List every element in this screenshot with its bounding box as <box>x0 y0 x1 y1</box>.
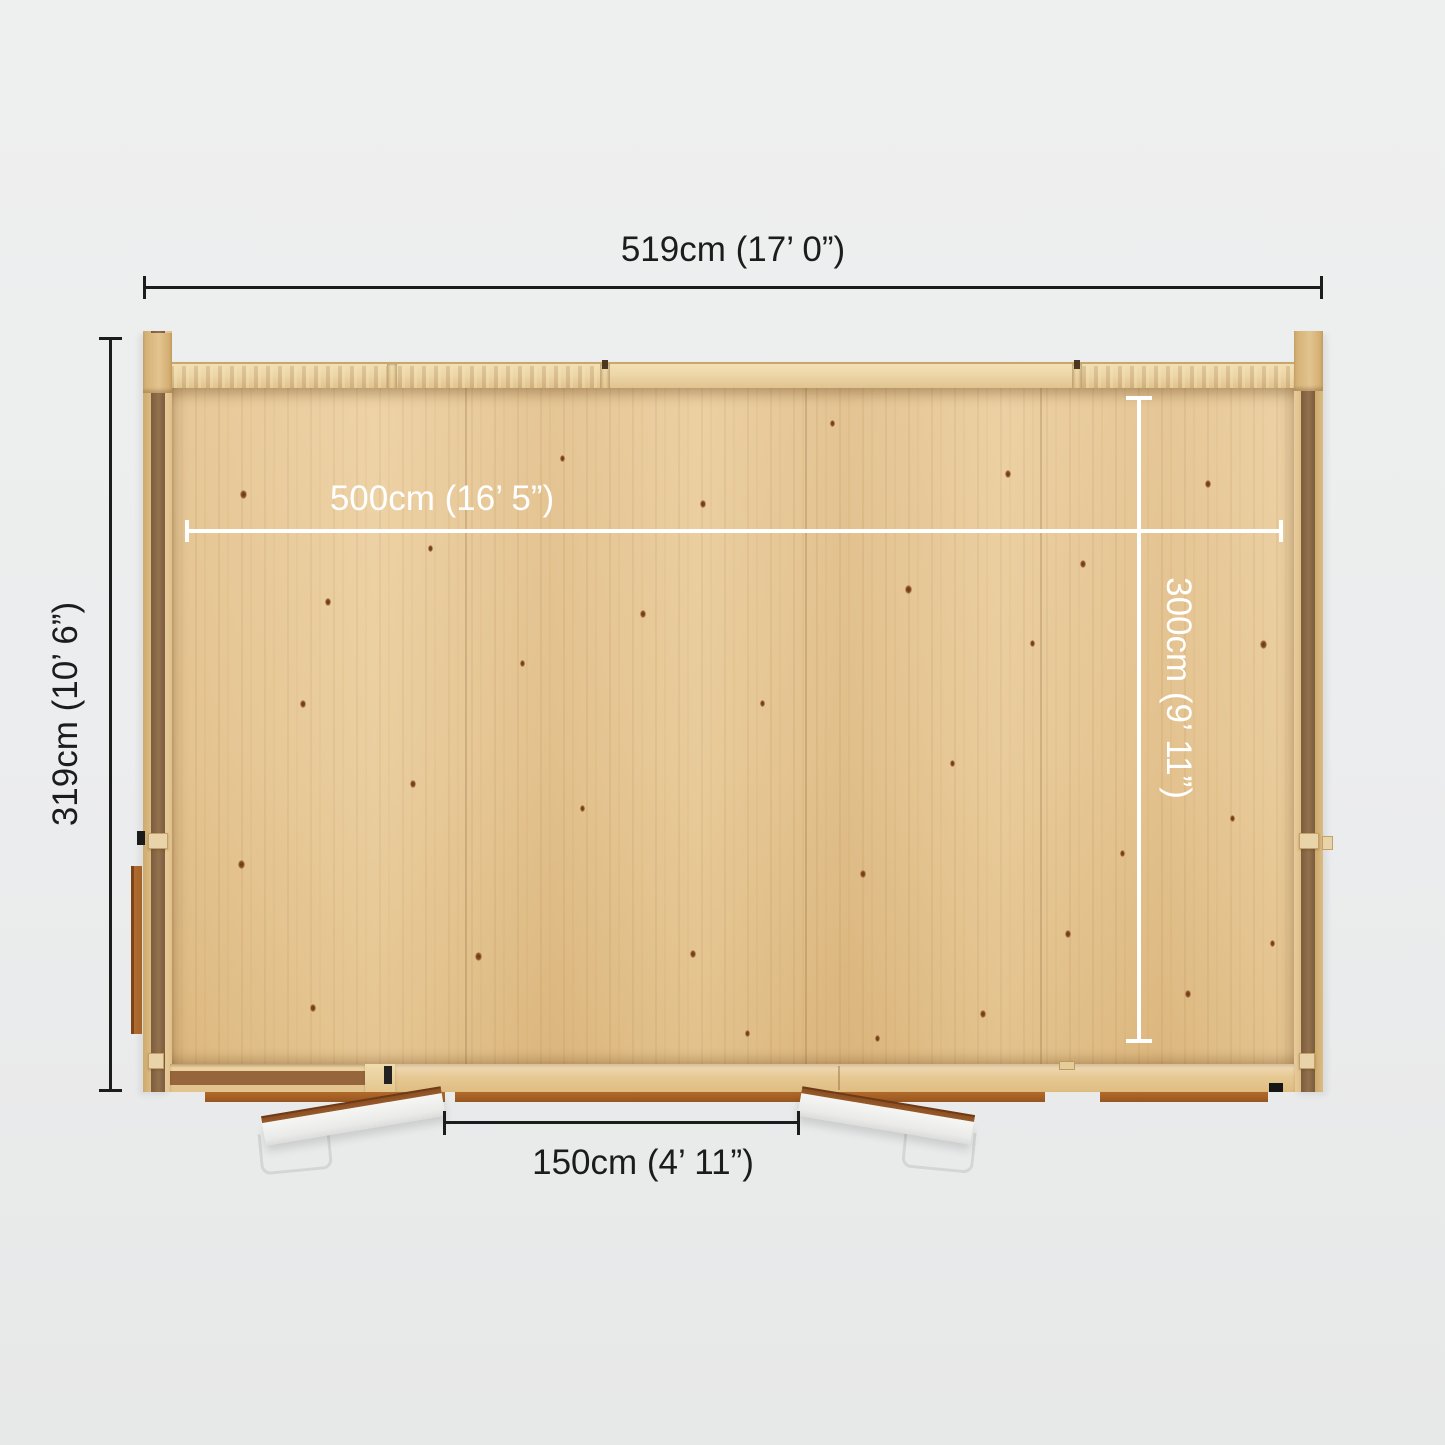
dimension-tick <box>1279 520 1283 542</box>
dimension-tick <box>1320 276 1323 299</box>
door-width-label: 150cm (4’ 11”) <box>532 1143 754 1183</box>
wood-knot <box>905 585 912 594</box>
wood-knot <box>428 545 433 552</box>
overall-depth-label: 319cm (10’ 6”) <box>46 602 86 826</box>
wood-knot <box>1120 850 1125 857</box>
wood-knot <box>980 1010 986 1018</box>
left-side-door-edge <box>131 866 142 1034</box>
right-wall-tie <box>1299 1053 1315 1069</box>
dimension-line <box>185 529 1283 533</box>
right-wall-tie <box>1299 833 1319 849</box>
internal-width-label: 500cm (16’ 5”) <box>330 479 554 519</box>
dimension-tick <box>443 1111 446 1135</box>
wood-knot <box>830 420 835 427</box>
wood-knot <box>520 660 525 667</box>
overall-width-label: 519cm (17’ 0”) <box>621 230 845 270</box>
front-sill <box>1100 1092 1268 1102</box>
wood-knot <box>860 870 866 878</box>
dimension-tick <box>185 520 189 542</box>
wood-knot <box>238 860 245 869</box>
left-wall-hinge-mark <box>137 831 145 845</box>
door-hinge-slot <box>384 1066 392 1084</box>
front-sill <box>455 1092 1045 1102</box>
wood-knot <box>310 1004 316 1012</box>
wood-knot <box>745 1030 750 1037</box>
wood-knot <box>475 952 482 961</box>
wood-knot <box>580 805 585 812</box>
wood-knot <box>1080 560 1086 568</box>
back-wall-log-endgrain <box>1082 366 1295 390</box>
left-wall-tie <box>148 1053 164 1069</box>
wood-knot <box>1185 990 1191 998</box>
right-wall-cavity <box>1301 331 1315 1092</box>
wood-knot <box>1270 940 1275 947</box>
door-latch-mark <box>1269 1083 1283 1092</box>
wood-knot <box>240 490 247 499</box>
dimension-line <box>443 1121 800 1124</box>
wood-knot <box>1005 470 1011 478</box>
left-wall-outer-board <box>143 331 151 1092</box>
front-wall-notch <box>1059 1061 1075 1070</box>
wood-knot <box>325 598 331 606</box>
front-wall-jamb <box>365 1064 395 1092</box>
dimension-tick <box>99 337 122 340</box>
wood-knot <box>1030 640 1035 647</box>
right-wall-inner-board <box>1294 331 1301 1092</box>
floor-seam <box>805 388 807 1064</box>
wood-knot <box>1065 930 1071 938</box>
left-wall <box>143 331 172 1092</box>
back-wall-notch <box>1074 360 1080 369</box>
front-wall-threshold <box>395 1064 1295 1092</box>
dimension-line <box>109 337 112 1092</box>
dimension-line <box>143 286 1323 289</box>
wood-knot <box>875 1035 880 1042</box>
front-wall-left-section <box>170 1064 365 1092</box>
wood-knot <box>950 760 955 767</box>
wood-knot <box>1205 480 1211 488</box>
wood-knot <box>690 950 696 958</box>
dimension-line <box>1137 396 1141 1043</box>
floor-seam <box>1040 388 1042 1064</box>
wood-knot <box>1260 640 1267 649</box>
internal-depth-label: 300cm (9’ 11”) <box>1158 577 1198 799</box>
front-wall-joint <box>838 1066 840 1090</box>
dimension-tick <box>797 1111 800 1135</box>
left-wall-tie <box>148 833 168 849</box>
left-wall-inner-board <box>165 331 172 1092</box>
wood-knot <box>300 700 306 708</box>
right-wall <box>1294 331 1323 1092</box>
diagram-canvas: 519cm (17’ 0”) 319cm (10’ 6”) 500cm (16’… <box>0 0 1445 1445</box>
dimension-tick <box>1126 396 1152 400</box>
right-wall-corner-board <box>1294 331 1323 391</box>
wood-knot <box>560 455 565 462</box>
wood-knot <box>700 500 706 508</box>
back-wall-log-endgrain <box>170 366 597 390</box>
wood-knot <box>640 610 646 618</box>
front-wall <box>170 1064 1295 1092</box>
left-wall-corner-board <box>143 333 172 393</box>
right-wall-tie-nub <box>1322 836 1333 850</box>
left-wall-cavity <box>151 331 165 1092</box>
dimension-tick <box>1126 1039 1152 1043</box>
wood-knot <box>410 780 416 788</box>
back-wall-notch <box>602 360 608 369</box>
dimension-tick <box>99 1089 122 1092</box>
dimension-tick <box>143 276 146 299</box>
wood-knot <box>1230 815 1235 822</box>
right-wall-outer-board <box>1315 331 1323 1092</box>
wood-knot <box>760 700 765 707</box>
